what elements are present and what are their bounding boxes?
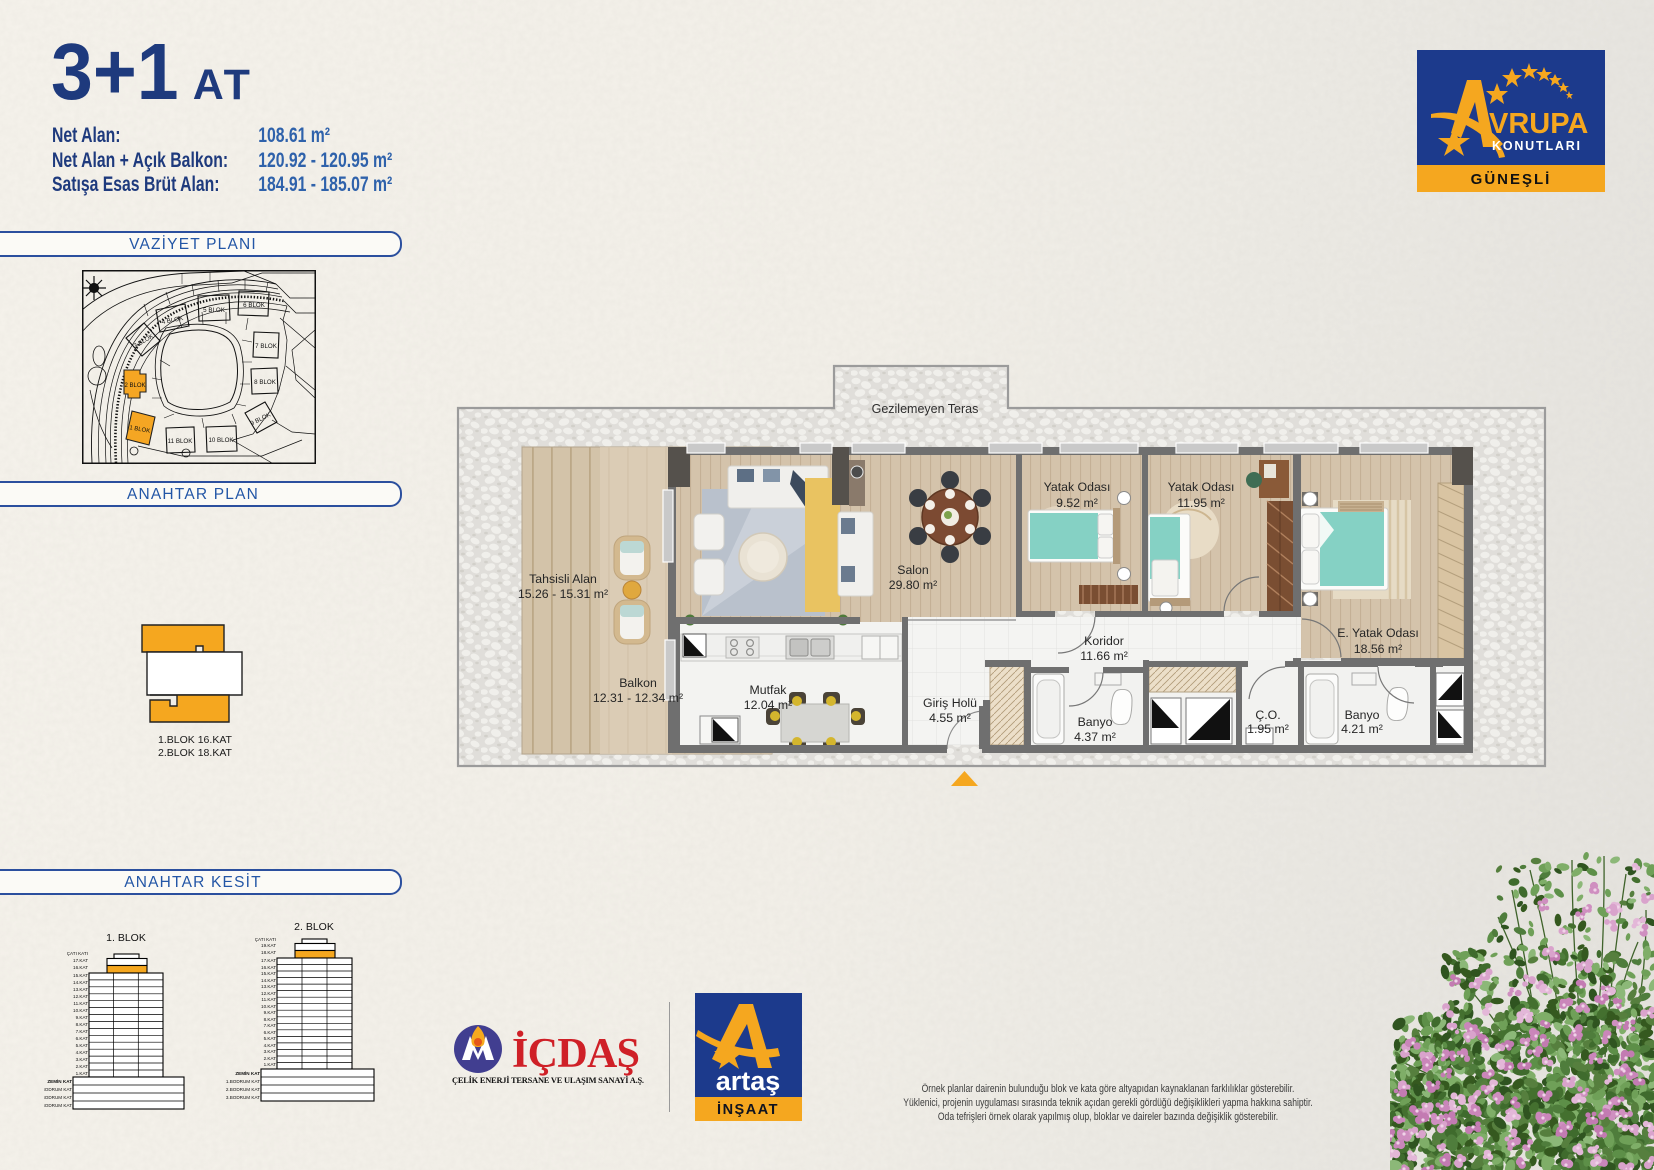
svg-text:4.37 m²: 4.37 m² (1074, 730, 1116, 744)
svg-text:1.BODRUM KAT: 1.BODRUM KAT (226, 1079, 260, 1084)
svg-text:7.KAT: 7.KAT (264, 1023, 277, 1028)
svg-text:12.31 - 12.34 m²: 12.31 - 12.34 m² (593, 691, 683, 705)
svg-text:2.KAT: 2.KAT (264, 1056, 277, 1061)
svg-text:6.KAT: 6.KAT (264, 1030, 277, 1035)
svg-text:1. BLOK: 1. BLOK (106, 932, 146, 944)
svg-text:VRUPA: VRUPA (1489, 108, 1588, 140)
svg-text:9 BLOK: 9 BLOK (249, 411, 272, 427)
svg-text:ÇATI KATI: ÇATI KATI (255, 937, 276, 942)
svg-text:15.KAT: 15.KAT (261, 971, 276, 976)
svg-text:15.26 - 15.31 m²: 15.26 - 15.31 m² (518, 587, 608, 601)
svg-text:10.KAT: 10.KAT (261, 1004, 276, 1009)
svg-text:2.KAT: 2.KAT (76, 1064, 89, 1069)
svg-text:ÇATI KATI: ÇATI KATI (67, 951, 88, 956)
svg-text:16.KAT: 16.KAT (73, 965, 88, 970)
svg-text:Banyo: Banyo (1345, 708, 1380, 722)
svg-text:3.KAT: 3.KAT (264, 1049, 277, 1054)
svg-text:GÜNEŞLİ: GÜNEŞLİ (1471, 171, 1552, 188)
svg-text:6 BLOK: 6 BLOK (243, 302, 266, 309)
svg-text:1.KAT: 1.KAT (264, 1062, 277, 1067)
svg-text:4.KAT: 4.KAT (264, 1043, 277, 1048)
svg-text:12.KAT: 12.KAT (73, 994, 88, 999)
svg-text:Mutfak: Mutfak (750, 683, 788, 697)
svg-text:18.KAT: 18.KAT (261, 950, 276, 955)
svg-text:9.KAT: 9.KAT (76, 1015, 89, 1020)
svg-text:Yatak Odası: Yatak Odası (1168, 480, 1235, 494)
svg-text:4 BLOK: 4 BLOK (161, 315, 184, 326)
svg-text:1.BODRUM KAT: 1.BODRUM KAT (44, 1087, 72, 1092)
svg-text:2.BODRUM KAT: 2.BODRUM KAT (226, 1087, 260, 1092)
svg-text:İÇDAŞ: İÇDAŞ (512, 1030, 640, 1077)
svg-text:ZEMİN KAT: ZEMİN KAT (235, 1070, 260, 1076)
svg-text:Koridor: Koridor (1084, 634, 1124, 648)
svg-text:3.KAT: 3.KAT (76, 1057, 89, 1062)
svg-text:13.KAT: 13.KAT (73, 987, 88, 992)
svg-text:Gezilemeyen Teras: Gezilemeyen Teras (872, 402, 979, 416)
svg-text:2. BLOK: 2. BLOK (294, 921, 334, 933)
svg-text:10 BLOK: 10 BLOK (208, 437, 234, 444)
svg-text:9.KAT: 9.KAT (264, 1010, 277, 1015)
svg-text:5.KAT: 5.KAT (76, 1043, 89, 1048)
svg-text:6.KAT: 6.KAT (76, 1036, 89, 1041)
svg-text:Salon: Salon (897, 563, 929, 577)
svg-text:14.KAT: 14.KAT (261, 978, 276, 983)
svg-text:29.80 m²: 29.80 m² (889, 578, 938, 592)
svg-text:8.KAT: 8.KAT (76, 1022, 89, 1027)
svg-text:15.KAT: 15.KAT (73, 973, 88, 978)
svg-text:5.KAT: 5.KAT (264, 1036, 277, 1041)
svg-text:1.KAT: 1.KAT (76, 1071, 89, 1076)
svg-text:3.BODRUM KAT: 3.BODRUM KAT (44, 1103, 72, 1108)
svg-text:Tahsisli Alan: Tahsisli Alan (529, 572, 597, 586)
svg-text:17.KAT: 17.KAT (261, 958, 276, 963)
svg-text:12.KAT: 12.KAT (261, 991, 276, 996)
svg-text:4.KAT: 4.KAT (76, 1050, 89, 1055)
svg-text:Balkon: Balkon (619, 676, 657, 690)
svg-text:19.KAT: 19.KAT (261, 943, 276, 948)
svg-text:ZEMİN KAT: ZEMİN KAT (47, 1078, 72, 1084)
svg-text:11 BLOK: 11 BLOK (168, 438, 194, 445)
svg-text:1.95 m²: 1.95 m² (1247, 722, 1289, 736)
svg-text:4.21 m²: 4.21 m² (1341, 722, 1383, 736)
svg-text:11.95 m²: 11.95 m² (1177, 496, 1225, 510)
svg-text:Banyo: Banyo (1078, 715, 1113, 729)
svg-text:Ç.O.: Ç.O. (1255, 708, 1280, 722)
svg-text:10.KAT: 10.KAT (73, 1008, 88, 1013)
svg-text:8 BLOK: 8 BLOK (254, 379, 277, 386)
svg-text:9.52 m²: 9.52 m² (1056, 496, 1098, 510)
svg-text:14.KAT: 14.KAT (73, 980, 88, 985)
svg-text:11.KAT: 11.KAT (73, 1001, 88, 1006)
svg-text:Giriş Holü: Giriş Holü (923, 696, 977, 710)
svg-text:2 BLOK: 2 BLOK (124, 383, 145, 389)
svg-text:8.KAT: 8.KAT (264, 1017, 277, 1022)
svg-text:2.BODRUM KAT: 2.BODRUM KAT (44, 1095, 72, 1100)
svg-text:İNŞAAT: İNŞAAT (717, 1101, 779, 1118)
svg-text:artaş: artaş (716, 1066, 781, 1096)
svg-text:13.KAT: 13.KAT (261, 984, 276, 989)
svg-text:ÇELİK ENERJİ TERSANE VE ULAŞIM: ÇELİK ENERJİ TERSANE VE ULAŞIM SANAYİ A.… (452, 1075, 644, 1085)
svg-text:3.BODRUM KAT: 3.BODRUM KAT (226, 1095, 260, 1100)
svg-text:12.04 m²: 12.04 m² (744, 698, 793, 712)
svg-text:16.KAT: 16.KAT (261, 965, 276, 970)
svg-text:18.56 m²: 18.56 m² (1354, 642, 1403, 656)
svg-text:7.KAT: 7.KAT (76, 1029, 89, 1034)
svg-text:E. Yatak Odası: E. Yatak Odası (1337, 626, 1419, 640)
svg-text:7 BLOK: 7 BLOK (255, 343, 278, 350)
svg-text:11.66 m²: 11.66 m² (1080, 649, 1128, 663)
svg-text:11.KAT: 11.KAT (261, 997, 276, 1002)
svg-text:17.KAT: 17.KAT (73, 958, 88, 963)
svg-text:KONUTLARI: KONUTLARI (1492, 139, 1582, 153)
svg-text:5 BLOK: 5 BLOK (203, 307, 226, 314)
svg-text:Yatak Odası: Yatak Odası (1044, 480, 1111, 494)
svg-text:4.55 m²: 4.55 m² (929, 711, 971, 725)
